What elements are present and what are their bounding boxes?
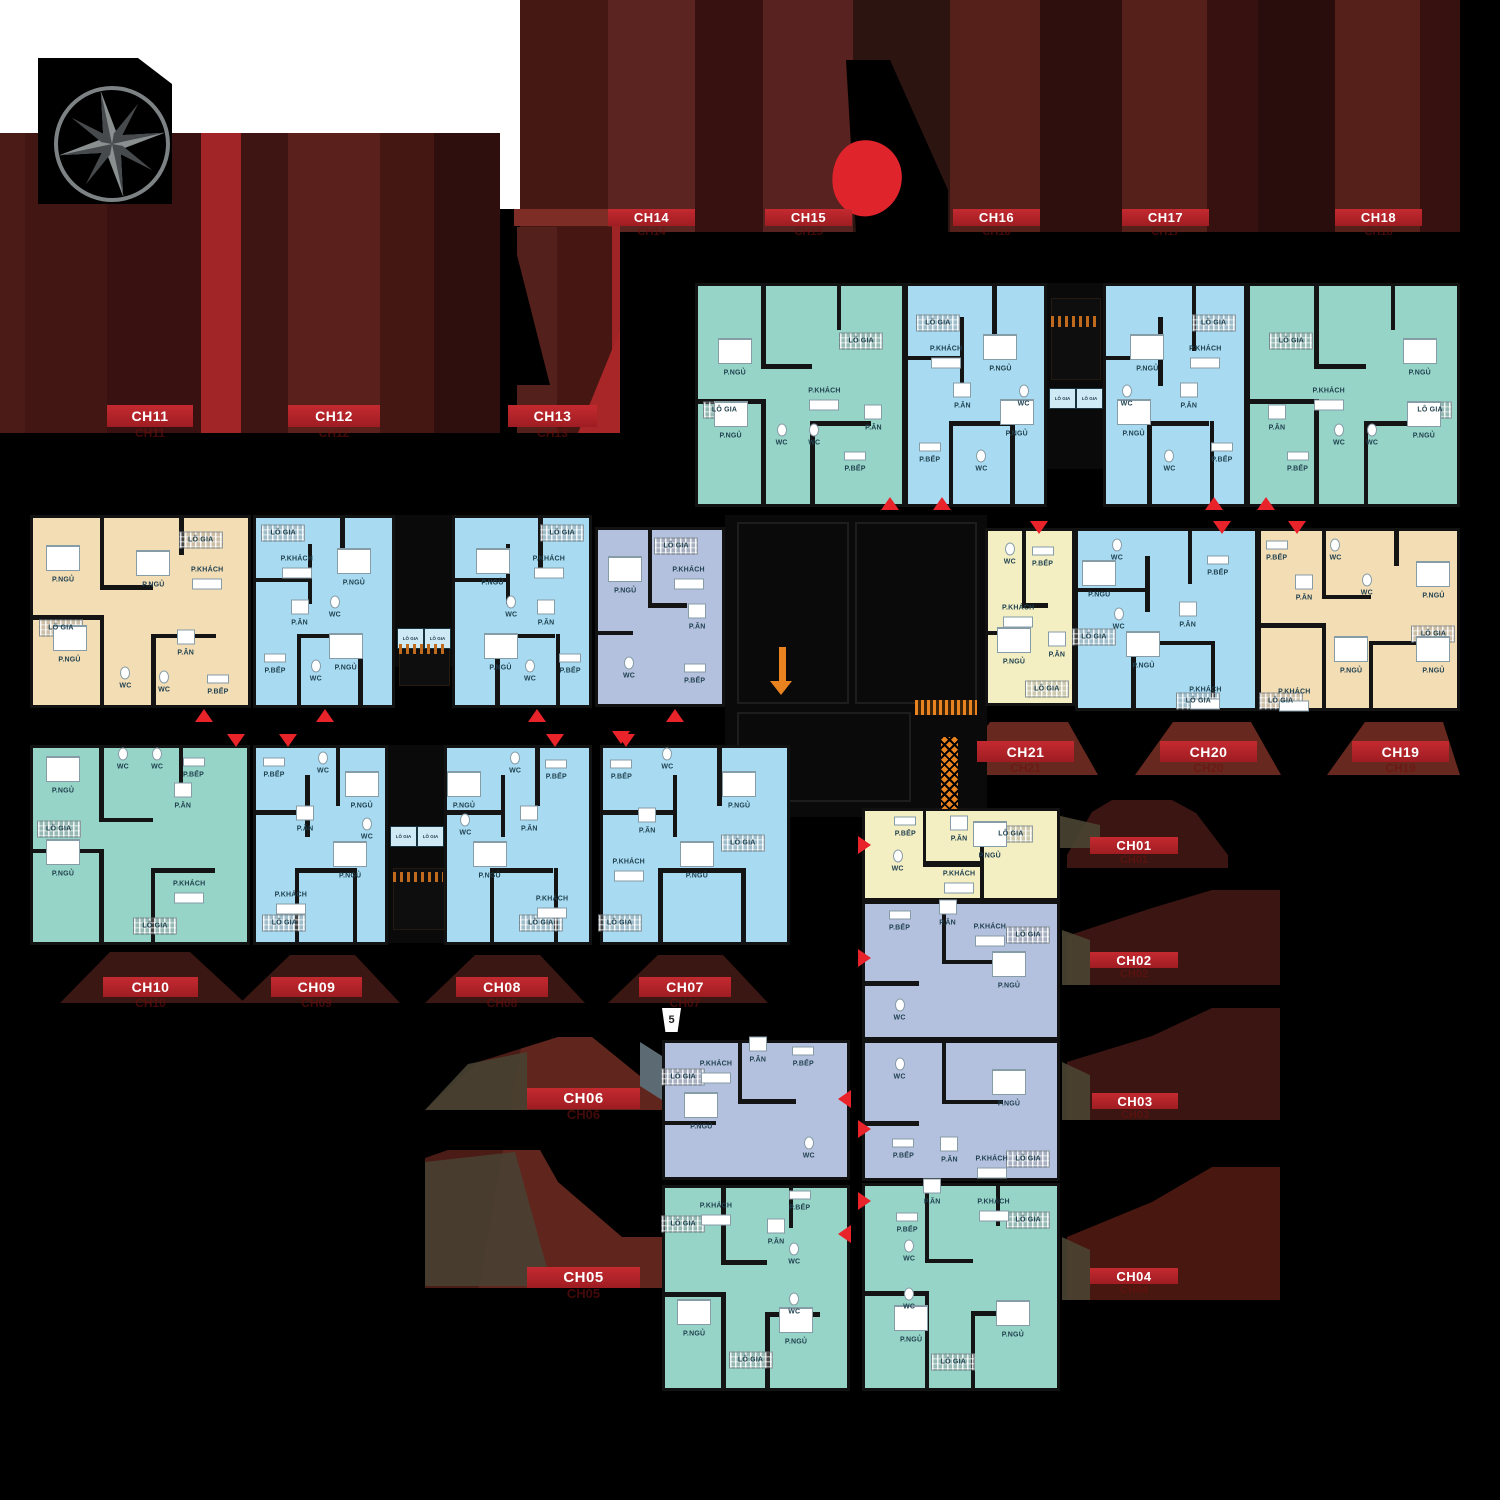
top-tower-band [520, 0, 1460, 232]
room-label: P.NGỦ [58, 657, 80, 664]
room-label: P.ĂN [939, 919, 956, 926]
interior-wall [1322, 623, 1327, 708]
room-label: P.KHÁCH [672, 567, 704, 574]
bed-icon [684, 1092, 718, 1118]
chip-ghost-CH18: CH18 [1335, 227, 1422, 236]
dining-table-icon [1295, 575, 1313, 590]
sofa-icon [614, 871, 644, 882]
apt-ch20[interactable]: P.NGỦWCP.BẾPWCP.ĂNLÔ GIAP.NGỦP.KHÁCHLÔ G… [1075, 528, 1258, 711]
apt-ch21[interactable]: WCP.BẾPP.KHÁCHP.ĂNP.NGỦLÔ GIA [985, 528, 1075, 706]
core-logia-label: LÔ GIA [1049, 388, 1076, 409]
chip-CH01[interactable]: CH01 [1090, 837, 1178, 854]
bed-icon [1416, 636, 1450, 662]
interior-wall [100, 615, 105, 705]
interior-wall [665, 1292, 721, 1297]
toilet-icon [362, 818, 372, 831]
stair-ticks-icon [1051, 316, 1099, 327]
entrance-arrow-down [279, 734, 297, 747]
dining-table-icon [177, 629, 195, 644]
room-label: LÔ GIA [1016, 1217, 1041, 1224]
chip-CH16[interactable]: CH16 [953, 209, 1040, 226]
interior-wall [151, 868, 215, 873]
room-label: P.KHÁCH [808, 387, 840, 394]
room-label: WC [505, 612, 517, 619]
toilet-icon [895, 1057, 905, 1070]
chip-CH08[interactable]: CH08 [456, 977, 548, 997]
room-label: WC [1111, 554, 1123, 561]
chip-CH21[interactable]: CH21 [977, 741, 1074, 762]
interior-wall [1314, 286, 1319, 364]
room-label: P.KHÁCH [974, 923, 1006, 930]
bed-icon [718, 338, 752, 364]
chip-ghost-CH08: CH08 [456, 998, 548, 1007]
bed-icon [337, 548, 371, 574]
toilet-icon [804, 1136, 814, 1149]
toilet-icon [1112, 538, 1122, 551]
interior-wall [765, 1312, 770, 1388]
room-label: LÔ GIA [1186, 697, 1211, 704]
room-label: WC [892, 866, 904, 873]
room-label: LÔ GIA [1279, 337, 1304, 344]
interior-wall [99, 818, 153, 823]
room-label: LÔ GIA [188, 537, 213, 544]
sofa-icon [931, 358, 961, 369]
chip-CH19[interactable]: CH19 [1352, 741, 1449, 762]
kitchen-counter-icon [183, 758, 205, 767]
room-label: P.NGỦ [343, 580, 365, 587]
kitchen-counter-icon [684, 664, 706, 673]
chip-CH10[interactable]: CH10 [103, 977, 198, 997]
apt-ch08[interactable]: WCP.BẾPWCP.ĂNP.NGỦP.NGỦP.KHÁCHLÔ GIA [444, 745, 592, 945]
room-label: LÔ GIA [663, 542, 688, 549]
bed-icon [1334, 636, 1368, 662]
entrance-arrow-right [858, 836, 871, 854]
kitchen-counter-icon [264, 654, 286, 663]
chip-CH06[interactable]: CH06 [527, 1088, 640, 1109]
room-label: P.NGỦ [614, 587, 636, 594]
interior-wall [598, 631, 633, 636]
apt-ch13[interactable]: P.NGỦLÔ GIAP.KHÁCHP.ĂNP.BẾPWC [595, 527, 725, 707]
apt-row1-c[interactable]: LÔ GIAP.KHÁCHP.NGỦP.ĂNWCP.NGỦP.BẾPWC [1103, 283, 1247, 507]
interior-wall [1369, 641, 1374, 708]
apt-row2-a[interactable]: P.NGỦP.NGỦLÔ GIAP.KHÁCHLÔ GIAP.NGỦWCWCP.… [30, 515, 251, 708]
toilet-icon [1122, 384, 1132, 397]
apt-ch01[interactable]: P.BẾPP.ĂNLÔ GIAP.NGỦWCP.KHÁCH [862, 808, 1060, 901]
apt-ch05[interactable]: P.KHÁCHLÔ GIAP.BẾPP.ĂNWCWCP.NGỦP.NGỦLÔ G… [662, 1185, 850, 1391]
room-label: P.NGỦ [339, 873, 361, 880]
room-label: P.NGỦ [690, 1124, 712, 1131]
room-label: P.NGỦ [481, 580, 503, 587]
room-label: LÔ GIA [925, 320, 950, 327]
entrance-arrow-up [528, 709, 546, 722]
room-label: P.NGỦ [1422, 667, 1444, 674]
chip-ghost-CH10: CH10 [103, 998, 198, 1007]
room-label: P.NGỦ [998, 983, 1020, 990]
room-label: P.BẾP [1207, 570, 1228, 577]
interior-wall [738, 1099, 796, 1104]
interior-wall [837, 286, 842, 330]
room-label: P.BẾP [611, 774, 632, 781]
dining-table-icon [1048, 631, 1066, 646]
room-label: WC [317, 768, 329, 775]
interior-wall [447, 810, 501, 815]
bed-icon [1416, 561, 1450, 587]
chip-CH02[interactable]: CH02 [1090, 952, 1178, 968]
room-label: WC [623, 673, 635, 680]
room-label: P.ĂN [177, 649, 194, 656]
toilet-icon [1367, 423, 1377, 436]
room-label: P.NGỦ [453, 803, 475, 810]
entrance-arrow-up [933, 497, 951, 510]
room-label: P.KHÁCH [700, 1203, 732, 1210]
bed-icon [608, 556, 642, 582]
dining-table-icon [864, 404, 882, 419]
bed-icon [1126, 631, 1160, 657]
dining-table-icon [520, 806, 538, 821]
kitchen-counter-icon [896, 1213, 918, 1222]
bed-icon [46, 545, 80, 571]
interior-wall [673, 775, 678, 837]
apt-ch03[interactable]: P.NGỦWCP.BẾPP.ĂNP.KHÁCHLÔ GIA [862, 1040, 1060, 1181]
dining-table-icon [291, 599, 309, 614]
room-label: P.KHÁCH [191, 567, 223, 574]
room-label: P.NGỦ [998, 1100, 1020, 1107]
room-label: P.NGỦ [979, 853, 1001, 860]
chip-CH09[interactable]: CH09 [271, 977, 362, 997]
room-label: LÔ GIA [998, 830, 1023, 837]
bed-icon [680, 841, 714, 867]
room-label: WC [1163, 466, 1175, 473]
room-label: WC [903, 1255, 915, 1262]
bed-icon [1407, 401, 1441, 427]
kitchen-counter-icon [1266, 540, 1288, 549]
room-label: P.NGỦ [52, 576, 74, 583]
room-label: P.BẾP [264, 668, 285, 675]
room-label: P.KHÁCH [1002, 605, 1034, 612]
bed-icon [333, 841, 367, 867]
entrance-arrow-down [227, 734, 245, 747]
room-label: P.NGỦ [1136, 365, 1158, 372]
room-label: P.KHÁCH [1189, 346, 1221, 353]
room-label: WC [803, 1152, 815, 1159]
stair-arrow-icon [779, 647, 786, 683]
entrance-arrow-left [838, 1225, 851, 1243]
interior-wall [865, 1121, 919, 1126]
room-label: P.KHÁCH [1189, 687, 1221, 694]
room-label: P.ĂN [1296, 595, 1313, 602]
room-label: WC [661, 764, 673, 771]
room-label: P.BẾP [1211, 457, 1232, 464]
room-label: WC [776, 439, 788, 446]
entrance-arrow-down [617, 734, 635, 747]
chip-CH07[interactable]: CH07 [639, 977, 731, 997]
room-label: WC [1366, 439, 1378, 446]
interior-wall [923, 811, 927, 863]
room-label: WC [1121, 400, 1133, 407]
room-label: WC [1004, 558, 1016, 565]
sofa-icon [979, 1211, 1009, 1222]
toilet-icon [662, 748, 672, 761]
sofa-icon [174, 892, 204, 903]
toilet-icon [318, 752, 328, 765]
chip-CH14[interactable]: CH14 [608, 209, 695, 226]
chip-CH13[interactable]: CH13 [508, 405, 597, 427]
interior-wall [738, 1043, 743, 1099]
room-label: P.BẾP [183, 772, 204, 779]
room-label: P.ĂN [1180, 402, 1197, 409]
dining-table-icon [1179, 601, 1197, 616]
dining-table-icon [1268, 404, 1286, 419]
kitchen-counter-icon [919, 443, 941, 452]
chip-ghost-CH02: CH02 [1090, 969, 1178, 978]
chip-ghost-CH16: CH16 [953, 227, 1040, 236]
entrance-arrow-down [1213, 521, 1231, 534]
room-label: P.KHÁCH [613, 859, 645, 866]
apt-row1-b[interactable]: LÔ GIAP.KHÁCHP.NGỦP.ĂNWCP.NGỦP.BẾPWC [905, 283, 1047, 507]
toilet-icon [904, 1288, 914, 1301]
chip-ghost-CH12: CH12 [288, 428, 380, 437]
room-label: LÔ GIA [1201, 320, 1226, 327]
bed-icon [447, 771, 481, 797]
room-label: LÔ GIA [941, 1358, 966, 1365]
compass-rose-icon [38, 52, 178, 208]
room-label: P.KHÁCH [943, 870, 975, 877]
interior-wall [761, 399, 766, 504]
interior-wall [1022, 531, 1027, 603]
room-label: WC [509, 768, 521, 775]
chip-ghost-CH01: CH01 [1090, 855, 1178, 864]
room-label: P.ĂN [750, 1057, 767, 1064]
chip-CH03[interactable]: CH03 [1092, 1093, 1178, 1109]
interior-wall [761, 364, 812, 369]
toilet-icon [1330, 538, 1340, 551]
room-label: LÔ GIA [272, 919, 297, 926]
room-label: P.NGỦ [52, 871, 74, 878]
entrance-arrow-down [1030, 521, 1048, 534]
sofa-icon [282, 568, 312, 579]
stair-ticks-icon [393, 872, 443, 882]
ch14-left-strip [514, 209, 608, 226]
room-label: WC [788, 1309, 800, 1316]
kitchen-counter-icon [894, 817, 916, 826]
room-label: P.BẾP [889, 924, 910, 931]
apt-ch04[interactable]: P.ĂNP.KHÁCHLÔ GIAP.BẾPWCWCP.NGỦP.NGỦLÔ G… [862, 1183, 1060, 1391]
interior-wall [1314, 399, 1319, 504]
chip-ghost-CH04: CH04 [1090, 1285, 1178, 1294]
room-label: WC [151, 764, 163, 771]
toilet-icon [624, 657, 634, 670]
entrance-arrow-down [546, 734, 564, 747]
bed-icon [473, 841, 507, 867]
room-label: P.ĂN [297, 826, 314, 833]
chip-CH05[interactable]: CH05 [527, 1267, 640, 1288]
toilet-icon [1164, 450, 1174, 463]
room-label: P.NGỦ [351, 803, 373, 810]
room-label: P.ĂN [538, 619, 555, 626]
room-label: P.KHÁCH [1278, 689, 1310, 696]
interior-wall [1261, 623, 1322, 628]
room-label: P.KHÁCH [275, 892, 307, 899]
chip-CH17[interactable]: CH17 [1122, 209, 1209, 226]
toilet-icon [1005, 542, 1015, 555]
toilet-icon [525, 659, 535, 672]
room-label: LÔ GIA [738, 1357, 763, 1364]
dining-table-icon [923, 1179, 941, 1194]
room-label: P.NGỦ [1413, 433, 1435, 440]
apt-row1-d[interactable]: P.NGỦLÔ GIAP.KHÁCHLÔ GIAP.NGỦWCWCP.ĂNP.B… [1247, 283, 1460, 507]
interior-wall [923, 861, 981, 867]
room-label: LÔ GIA [849, 337, 874, 344]
sofa-icon [1314, 399, 1344, 410]
room-label: P.ĂN [639, 828, 656, 835]
room-label: LÔ GIA [271, 529, 296, 536]
toilet-icon [976, 450, 986, 463]
room-label: LÔ GIA [550, 529, 575, 536]
room-label: P.ĂN [521, 826, 538, 833]
chip-ghost-CH03: CH03 [1092, 1110, 1178, 1119]
kitchen-counter-icon [207, 674, 229, 683]
chip-CH18[interactable]: CH18 [1335, 209, 1422, 226]
interior-wall [721, 1260, 767, 1265]
interior-wall [1314, 364, 1366, 369]
chute-icon: 5 [662, 1008, 681, 1032]
chip-CH11[interactable]: CH11 [107, 405, 193, 427]
sofa-icon [192, 579, 222, 590]
apt-ch06[interactable]: P.KHÁCHP.ĂNP.BẾPLÔ GIAP.NGỦWC [662, 1040, 850, 1180]
toilet-icon [895, 999, 905, 1012]
chip-CH15[interactable]: CH15 [765, 209, 852, 226]
apt-ch09[interactable]: P.BẾPWCP.ĂNWCP.NGỦP.KHÁCHLÔ GIAP.NGỦ [253, 745, 388, 945]
room-label: P.NGỦ [728, 803, 750, 810]
room-label: LÔ GIA [1016, 1156, 1041, 1163]
apt-row2-c[interactable]: LÔ GIAP.KHÁCHP.NGỦWCP.ĂNP.BẾPP.NGỦWC [452, 515, 592, 708]
entrance-arrow-right [858, 1120, 871, 1138]
room-label: P.NGỦ [724, 370, 746, 377]
interior-wall [151, 634, 156, 705]
room-label: P.NGỦ [489, 664, 511, 671]
room-label: P.ĂN [174, 803, 191, 810]
room-label: P.BẾP [1266, 554, 1287, 561]
bed-icon [46, 756, 80, 782]
room-label: LÔ GIA [46, 826, 71, 833]
toilet-icon [120, 667, 130, 680]
room-label: WC [975, 466, 987, 473]
room-label: P.KHÁCH [1312, 387, 1344, 394]
bed-icon [345, 771, 379, 797]
apt-row1-a[interactable]: P.NGỦLÔ GIAP.KHÁCHLÔ GIAP.NGỦWCWCP.ĂNP.B… [695, 283, 905, 507]
room-label: LÔ GIA [1034, 686, 1059, 693]
interior-wall [865, 981, 919, 986]
kitchen-counter-icon [892, 1139, 914, 1148]
interior-wall [925, 1259, 973, 1264]
interior-wall [741, 868, 746, 942]
apt-row2-b[interactable]: LÔ GIAP.KHÁCHP.NGỦWCP.ĂNP.BẾPP.NGỦWC [253, 515, 395, 708]
interior-wall [501, 775, 506, 837]
core-logia-label: LÔ GIA [390, 826, 417, 847]
room-label: WC [1361, 589, 1373, 596]
kitchen-counter-icon [792, 1047, 814, 1056]
toilet-icon [118, 748, 128, 761]
room-label: P.BẾP [793, 1061, 814, 1068]
sofa-icon [944, 882, 974, 893]
entrance-arrow-up [881, 497, 899, 510]
chip-CH12[interactable]: CH12 [288, 405, 380, 427]
room-label: P.NGỦ [335, 664, 357, 671]
corridor-outline [855, 522, 977, 704]
bed-icon [136, 550, 170, 576]
entrance-arrow-up [316, 709, 334, 722]
entrance-arrow-right [858, 949, 871, 967]
corridor-outline [737, 522, 849, 704]
sofa-icon [701, 1215, 731, 1226]
kitchen-counter-icon [1207, 556, 1229, 565]
interior-wall [721, 1292, 726, 1388]
bed-icon [983, 334, 1017, 360]
room-label: P.NGỦ [719, 433, 741, 440]
sofa-icon [977, 1168, 1007, 1179]
toilet-icon [904, 1239, 914, 1252]
room-label: P.NGỦ [142, 582, 164, 589]
toilet-icon [330, 596, 340, 609]
room-label: P.NGỦ [1088, 591, 1110, 598]
interior-wall [1147, 421, 1152, 504]
room-label: LÔ GIA [1268, 697, 1293, 704]
bed-icon [722, 771, 756, 797]
chip-CH04[interactable]: CH04 [1090, 1268, 1178, 1284]
room-label: WC [788, 1259, 800, 1266]
interior-wall [942, 1043, 947, 1100]
bed-icon [996, 1300, 1030, 1326]
interior-wall [658, 868, 663, 942]
room-label: P.KHÁCH [700, 1061, 732, 1068]
entrance-arrow-up [1205, 497, 1223, 510]
toilet-icon [1334, 423, 1344, 436]
room-label: P.KHÁCH [930, 346, 962, 353]
chip-ghost-CH15: CH15 [765, 227, 852, 236]
interior-wall [1322, 531, 1327, 595]
chip-ghost-CH17: CH17 [1122, 227, 1209, 236]
toilet-icon [777, 423, 787, 436]
chip-CH20[interactable]: CH20 [1160, 741, 1257, 762]
interior-wall [810, 421, 871, 426]
chip-ghost-CH20: CH20 [1160, 763, 1257, 772]
kitchen-counter-icon [545, 760, 567, 769]
bed-icon [1082, 560, 1116, 586]
toilet-icon [1114, 607, 1124, 620]
apt-ch07[interactable]: P.BẾPWCP.NGỦP.ĂNP.KHÁCHP.NGỦLÔ GIALÔ GIA [600, 745, 790, 945]
room-label: P.KHÁCH [536, 896, 568, 903]
dining-table-icon [767, 1219, 785, 1234]
toilet-icon [510, 752, 520, 765]
toilet-icon [1019, 384, 1029, 397]
interior-wall [1188, 531, 1193, 584]
toilet-icon [789, 1293, 799, 1306]
room-label: P.NGỦ [1003, 658, 1025, 665]
room-label: WC [119, 683, 131, 690]
room-label: P.BẾP [546, 774, 567, 781]
apt-ch10[interactable]: WCWCP.BẾPP.ĂNP.NGỦLÔ GIAP.NGỦP.KHÁCHLÔ G… [30, 745, 250, 945]
apt-ch19[interactable]: P.BẾPP.ĂNWCWCP.NGỦLÔ GIAP.NGỦP.NGỦP.KHÁC… [1258, 528, 1460, 711]
bed-icon [476, 548, 510, 574]
room-label: WC [894, 1015, 906, 1022]
chip-ghost-CH19: CH19 [1352, 763, 1449, 772]
stair-ticks-icon [399, 644, 448, 654]
room-label: P.ĂN [689, 624, 706, 631]
interior-wall [179, 748, 184, 787]
dining-table-icon [940, 1137, 958, 1152]
chip-ghost-CH06: CH06 [527, 1110, 640, 1119]
apt-ch02[interactable]: P.BẾPP.ĂNP.KHÁCHLÔ GIAP.NGỦWC [862, 901, 1060, 1040]
